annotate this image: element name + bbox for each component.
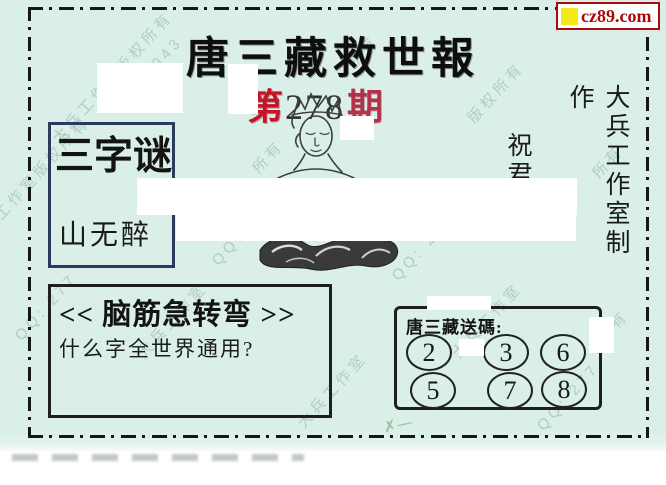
riddle-content: 山无醉	[59, 213, 152, 253]
badge-square-icon	[561, 8, 578, 25]
censor-block	[97, 63, 183, 113]
code-circle: 8	[541, 371, 587, 408]
code-circle: 2	[406, 334, 452, 371]
censor-block	[340, 116, 374, 140]
brain-teaser-box: << 脑筋急转弯 >> 什么字全世界通用?	[48, 284, 332, 418]
scan-smudge	[12, 454, 304, 461]
pen-scribble: ✗—	[381, 412, 414, 437]
frame-border-bottom	[28, 435, 648, 438]
censor-block	[589, 317, 614, 353]
newspaper-sheet: 大兵工作室版权所有 QQ: 277 大兵工作室版权所有 943 大兵工作室 QQ…	[0, 0, 666, 452]
riddle-title: 三字谜	[55, 125, 172, 181]
brain-teaser-header: << 脑筋急转弯 >>	[59, 291, 296, 333]
censor-block	[176, 213, 576, 241]
code-circle: 7	[487, 372, 533, 409]
frame-border-left	[28, 7, 31, 438]
code-circle: 5	[410, 372, 456, 409]
code-circle: 3	[483, 334, 529, 371]
censor-block	[427, 296, 491, 310]
frame-border-right	[646, 7, 649, 438]
site-badge-link[interactable]: cz89.com	[556, 2, 660, 30]
publisher-credit: 大兵工作室制作	[561, 84, 633, 269]
badge-text: cz89.com	[581, 6, 651, 27]
code-circle: 6	[540, 334, 586, 371]
censor-block	[137, 178, 577, 215]
lucky-codes-box: 唐三藏送碼: 2 3 6 5 7 8	[394, 306, 602, 410]
brain-teaser-question: 什么字全世界通用?	[59, 333, 254, 363]
censor-block	[228, 64, 258, 114]
censor-block	[459, 339, 484, 356]
frame-border-top	[28, 7, 648, 10]
